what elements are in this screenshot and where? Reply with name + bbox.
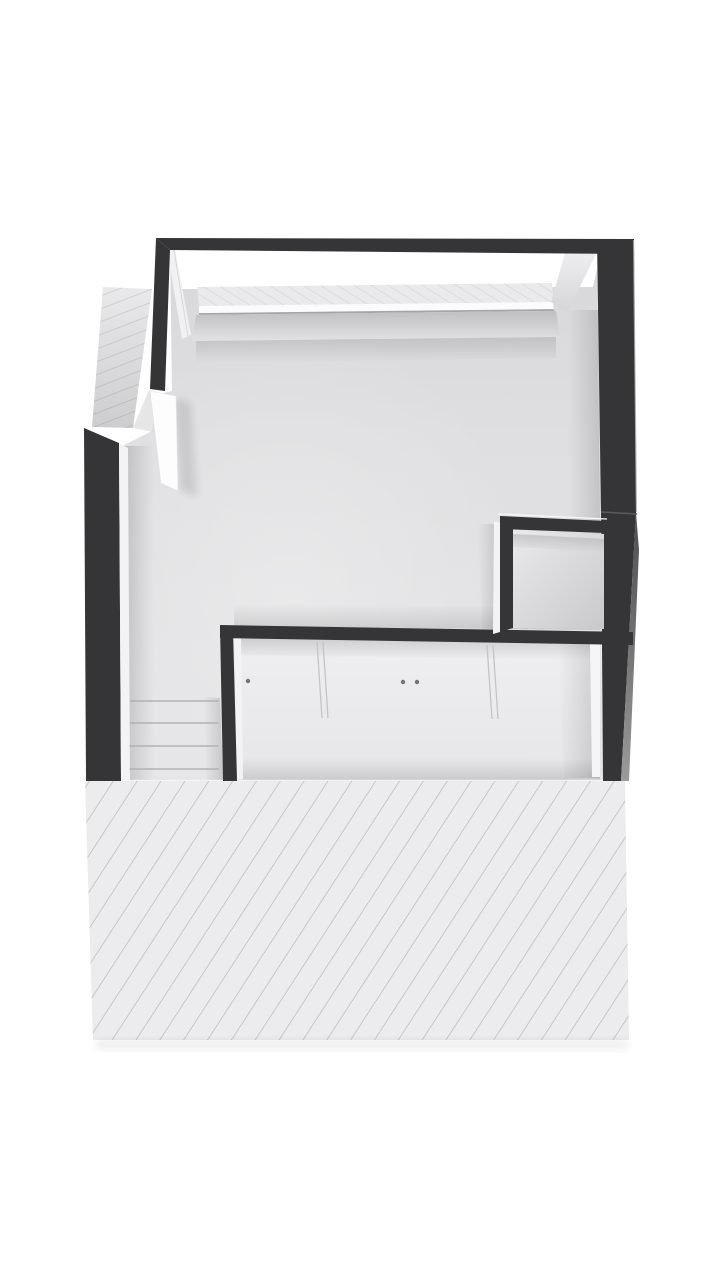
right-wall-upper <box>597 239 636 513</box>
stair-shadow <box>204 697 223 780</box>
wardrobe-knob <box>401 680 405 684</box>
floorplan-3d-view <box>0 0 720 1280</box>
small-closet-room <box>493 514 607 634</box>
wardrobe-closet <box>220 625 633 781</box>
top-knee-wall-face <box>192 311 560 341</box>
closet-room-left-trim <box>493 521 500 634</box>
wardrobe-knob <box>415 680 419 684</box>
lower-roof-hatch <box>85 781 629 1040</box>
wardrobe-interior-bottom-shadow <box>235 758 600 780</box>
floorplan-page <box>0 0 720 1280</box>
top-void <box>165 247 602 289</box>
closet-room-left-wall <box>500 516 513 632</box>
lower-left-wall <box>84 428 121 781</box>
lower-roof-bottom-shadow <box>96 1040 628 1049</box>
wardrobe-knob <box>246 679 250 683</box>
